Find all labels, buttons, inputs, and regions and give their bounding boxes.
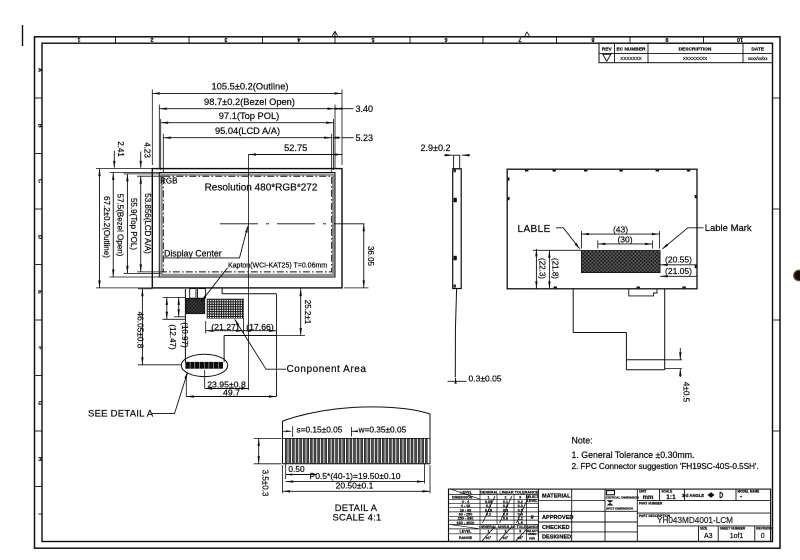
svg-text:2.41: 2.41 <box>116 141 125 157</box>
svg-text:4±0.5: 4±0.5 <box>682 382 691 403</box>
svg-text:LEVEL: LEVEL <box>460 529 473 533</box>
svg-text:1of1: 1of1 <box>730 533 744 540</box>
svg-text:B: B <box>36 124 42 128</box>
svg-text:±2°: ±2° <box>503 536 509 540</box>
svg-text:4.23: 4.23 <box>143 142 152 158</box>
svg-text:10: 10 <box>737 36 743 42</box>
svg-text:20.50±0.1: 20.50±0.1 <box>336 481 374 491</box>
svg-text:2: 2 <box>150 36 153 42</box>
svg-text:55.9(Top POL): 55.9(Top POL) <box>129 198 138 250</box>
svg-text:67.2±0.2(Outline): 67.2±0.2(Outline) <box>102 196 111 258</box>
svg-text:95.04(LCD A/A): 95.04(LCD A/A) <box>215 126 280 136</box>
svg-text:9: 9 <box>665 36 668 42</box>
svg-text:Conponent Area: Conponent Area <box>287 364 367 375</box>
svg-text:2.9±0.2: 2.9±0.2 <box>421 143 451 153</box>
svg-text:7: 7 <box>518 36 521 42</box>
svg-text:DATE: DATE <box>751 47 765 53</box>
svg-text:RGB: RGB <box>160 177 177 186</box>
svg-text:A3: A3 <box>704 533 713 540</box>
svg-text:MATERIAL: MATERIAL <box>542 493 571 499</box>
svg-text:LABLE: LABLE <box>518 224 551 235</box>
svg-text:98.7±0.2(Bezel Open): 98.7±0.2(Bezel Open) <box>204 97 295 107</box>
svg-text:SIZE: SIZE <box>700 526 707 530</box>
svg-text:(12.47): (12.47) <box>168 324 177 350</box>
svg-text:3.40: 3.40 <box>356 104 374 114</box>
svg-text:H: H <box>36 457 42 461</box>
svg-text:(21.27): (21.27) <box>211 322 239 332</box>
svg-text:5.23: 5.23 <box>356 133 374 143</box>
svg-text:UNIT: UNIT <box>639 490 646 494</box>
svg-text:SCALE: SCALE <box>662 490 673 494</box>
svg-text:1. General Tolerance ±0.30mm.: 1. General Tolerance ±0.30mm. <box>572 450 695 460</box>
svg-text:-: - <box>740 494 742 501</box>
svg-text:(20.55): (20.55) <box>665 255 692 265</box>
svg-text:PART NUMBER: PART NUMBER <box>639 502 663 506</box>
svg-text:CRITICAL DIMENSION: CRITICAL DIMENSION <box>606 496 640 500</box>
svg-text:1: 1 <box>77 36 80 42</box>
svg-text:2: 2 <box>504 496 506 500</box>
svg-text:XXXXXXXX: XXXXXXXX <box>683 56 708 61</box>
svg-text:DIMENSION: DIMENSION <box>452 496 473 500</box>
svg-text:N/A: N/A <box>529 536 535 540</box>
svg-text:0.50: 0.50 <box>288 464 305 474</box>
svg-text:1: 1 <box>487 496 489 500</box>
svg-text:GENERAL LINEAR TOLERANCE: GENERAL LINEAR TOLERANCE <box>480 490 539 494</box>
svg-text:SHEET NUMBER: SHEET NUMBER <box>720 526 746 530</box>
svg-text:1:1: 1:1 <box>666 494 676 501</box>
svg-text:3.5±0.3: 3.5±0.3 <box>260 470 269 497</box>
svg-text:Display Center: Display Center <box>164 248 222 258</box>
svg-text:1.5: 1.5 <box>518 521 523 525</box>
svg-text:LEVEL: LEVEL <box>527 499 538 503</box>
svg-text:(21.05): (21.05) <box>665 266 692 276</box>
svg-text:(43): (43) <box>613 225 628 235</box>
svg-text:G: G <box>36 401 42 405</box>
svg-text:2. FPC Connector suggestion ': 2. FPC Connector suggestion 'FH19SC-40S-… <box>572 461 759 471</box>
svg-text:0: 0 <box>761 533 765 540</box>
svg-text:C: C <box>36 179 42 183</box>
svg-text:105.5±0.2(Outline): 105.5±0.2(Outline) <box>212 82 289 92</box>
svg-text:DESCRIPTION: DESCRIPTION <box>679 47 712 53</box>
svg-text:3rd ANGLE: 3rd ANGLE <box>682 493 704 498</box>
svg-text:Note:: Note: <box>572 435 593 445</box>
svg-text:(21.8): (21.8) <box>551 258 560 279</box>
svg-text:CHECKED: CHECKED <box>542 525 570 531</box>
svg-text:Lable Mark: Lable Mark <box>705 223 752 234</box>
svg-text:(22.3): (22.3) <box>538 258 547 279</box>
svg-text:ANGL: ANGL <box>528 532 537 536</box>
svg-text:D: D <box>36 235 42 239</box>
svg-text:0.6: 0.6 <box>503 517 508 521</box>
svg-text:±1°: ±1° <box>486 536 492 540</box>
svg-text:53.856(LCD A/A): 53.856(LCD A/A) <box>143 193 152 254</box>
svg-text:Resolution 480*RGB*272: Resolution 480*RGB*272 <box>205 183 318 194</box>
svg-text:3: 3 <box>519 496 521 500</box>
svg-text:APPROVED: APPROVED <box>542 515 573 521</box>
svg-text:w=0.35±0.05: w=0.35±0.05 <box>358 424 407 434</box>
svg-text:RANGE: RANGE <box>459 536 473 540</box>
svg-text:P0.5*(40-1)=19.50±0.10: P0.5*(40-1)=19.50±0.10 <box>310 471 401 481</box>
svg-text:xxxx/xx/xx: xxxx/xx/xx <box>748 56 768 61</box>
svg-text:(30): (30) <box>617 235 632 245</box>
svg-text:E: E <box>36 290 42 294</box>
svg-text:REV: REV <box>602 47 613 53</box>
svg-text:3: 3 <box>224 36 227 42</box>
svg-text:52.75: 52.75 <box>284 143 307 153</box>
svg-text:LEVEL: LEVEL <box>460 490 472 494</box>
svg-text:6: 6 <box>444 36 447 42</box>
svg-text:(10.97): (10.97) <box>180 322 189 348</box>
svg-text:SEE DETAIL A: SEE DETAIL A <box>88 409 154 420</box>
svg-text:5: 5 <box>371 36 374 42</box>
svg-text:XXXXXXX: XXXXXXX <box>620 56 641 61</box>
svg-text:97.1(Top POL): 97.1(Top POL) <box>219 111 279 121</box>
svg-text:25.2±1: 25.2±1 <box>303 300 312 325</box>
svg-text:A: A <box>36 68 42 72</box>
svg-text:s=0.15±0.05: s=0.15±0.05 <box>297 424 343 434</box>
svg-text:36.05: 36.05 <box>366 246 375 267</box>
svg-text:630 - 4000: 630 - 4000 <box>457 521 475 525</box>
svg-text:mm: mm <box>643 495 654 501</box>
svg-text:0.3±0.05: 0.3±0.05 <box>469 373 502 383</box>
svg-text:Kapton(WCI-KAT25) T=0.06mm: Kapton(WCI-KAT25) T=0.06mm <box>228 262 327 269</box>
svg-text:#: # <box>531 515 534 521</box>
svg-text:46.05±0.8: 46.05±0.8 <box>135 312 145 349</box>
svg-text:REVISION: REVISION <box>756 526 772 530</box>
svg-text:SCALE 4:1: SCALE 4:1 <box>332 512 381 523</box>
svg-text:YH043MD4001-LCM: YH043MD4001-LCM <box>657 516 733 525</box>
svg-text:49.7: 49.7 <box>223 388 240 398</box>
svg-text:57.5(Bezel Open): 57.5(Bezel Open) <box>116 194 125 257</box>
svg-text:(17.66): (17.66) <box>246 322 274 332</box>
svg-text:3: 3 <box>519 529 521 533</box>
svg-text:8: 8 <box>591 36 594 42</box>
svg-text:SPOT DIMENSION: SPOT DIMENSION <box>606 506 634 510</box>
svg-text:DESIGNED: DESIGNED <box>542 535 571 541</box>
svg-text:EC NUMBER: EC NUMBER <box>616 47 646 53</box>
